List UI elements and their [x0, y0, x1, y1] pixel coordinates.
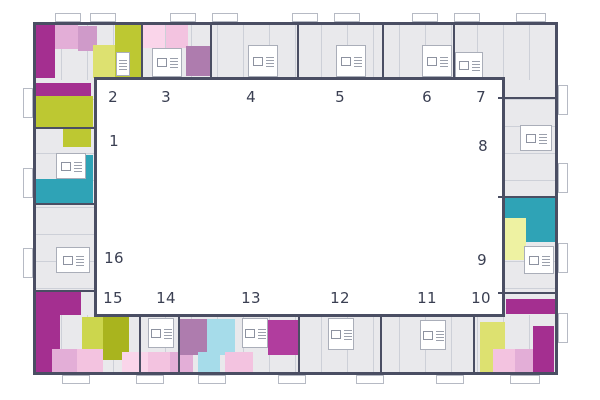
stairs-icon	[344, 329, 352, 340]
section-label-15[interactable]: 15	[103, 289, 123, 307]
section-label-7[interactable]: 7	[476, 88, 486, 106]
wall-divider	[178, 315, 180, 372]
section-label-8[interactable]: 8	[478, 137, 488, 155]
elevator-icon	[61, 162, 71, 171]
balcony-outline	[55, 13, 81, 22]
apartment-block[interactable]	[493, 349, 515, 372]
section-label-6[interactable]: 6	[422, 88, 432, 106]
balcony-outline	[62, 375, 90, 384]
wall-divider	[297, 25, 299, 80]
stairs-icon	[76, 255, 84, 266]
wall-divider	[36, 127, 96, 129]
section-label-14[interactable]: 14	[156, 289, 176, 307]
stair-core	[242, 318, 268, 348]
stair-core	[455, 52, 483, 78]
balcony-outline	[292, 13, 318, 22]
wall-divider	[473, 315, 475, 372]
stair-core	[328, 318, 354, 350]
elevator-icon	[245, 329, 255, 338]
stairs-icon	[170, 57, 178, 68]
apartment-block[interactable]	[166, 25, 188, 48]
stair-core	[248, 45, 278, 77]
section-label-16[interactable]: 16	[104, 249, 124, 267]
apartment-block[interactable]	[170, 352, 193, 372]
wall-divider	[298, 315, 300, 372]
apartment-block[interactable]	[36, 25, 55, 78]
courtyard-area	[94, 77, 505, 317]
apartment-block[interactable]	[533, 326, 554, 372]
apartment-block[interactable]	[148, 352, 170, 372]
apartment-block[interactable]	[36, 83, 91, 96]
elevator-icon	[253, 57, 263, 66]
stair-core	[524, 246, 554, 274]
section-label-10[interactable]: 10	[471, 289, 491, 307]
stair-core	[420, 320, 446, 350]
section-label-9[interactable]: 9	[477, 251, 487, 269]
stairs-icon	[119, 59, 127, 70]
section-label-1[interactable]: 1	[109, 132, 119, 150]
stairs-icon	[539, 133, 547, 144]
wall-divider	[210, 25, 212, 80]
balcony-outline	[516, 13, 546, 22]
apartment-block[interactable]	[52, 349, 77, 372]
stair-core	[422, 45, 452, 77]
elevator-icon	[341, 57, 351, 66]
stair-core	[152, 48, 182, 77]
elevator-icon	[529, 256, 539, 265]
wall-divider	[36, 203, 96, 205]
balcony-outline	[412, 13, 438, 22]
stairs-icon	[440, 56, 448, 67]
apartment-block[interactable]	[504, 218, 526, 260]
wall-divider	[141, 25, 143, 80]
stair-core	[56, 247, 90, 273]
balcony-outline	[510, 375, 540, 384]
elevator-icon	[157, 58, 167, 67]
stair-core	[56, 153, 86, 179]
apartment-block[interactable]	[77, 349, 103, 372]
stair-core	[116, 52, 130, 76]
wall-divider	[139, 315, 141, 372]
elevator-icon	[151, 329, 161, 338]
stairs-icon	[74, 161, 82, 172]
apartment-block[interactable]	[186, 46, 210, 76]
elevator-icon	[459, 61, 469, 70]
elevator-icon	[526, 134, 536, 143]
balcony-outline	[23, 168, 33, 198]
apartment-block[interactable]	[225, 352, 253, 372]
section-label-3[interactable]: 3	[161, 88, 171, 106]
stair-core	[520, 125, 552, 151]
apartment-block[interactable]	[180, 319, 207, 355]
elevator-icon	[63, 256, 73, 265]
elevator-icon	[427, 57, 437, 66]
section-label-13[interactable]: 13	[241, 289, 261, 307]
apartment-block[interactable]	[506, 299, 555, 314]
balcony-outline	[436, 375, 464, 384]
apartment-block[interactable]	[268, 320, 298, 355]
balcony-outline	[278, 375, 306, 384]
wall-divider	[382, 25, 384, 80]
wall-divider	[36, 290, 96, 292]
section-label-11[interactable]: 11	[417, 289, 437, 307]
apartment-block[interactable]	[36, 292, 81, 315]
apartment-block[interactable]	[207, 319, 235, 355]
apartment-block[interactable]	[122, 352, 148, 372]
stairs-icon	[472, 60, 480, 71]
apartment-block[interactable]	[525, 198, 555, 242]
balcony-outline	[136, 375, 164, 384]
balcony-outline	[558, 243, 568, 273]
apartment-block[interactable]	[198, 352, 220, 372]
apartment-block[interactable]	[55, 25, 78, 49]
balcony-outline	[558, 85, 568, 115]
stairs-icon	[542, 255, 550, 266]
stairs-icon	[258, 328, 266, 339]
balcony-outline	[198, 375, 226, 384]
stairs-icon	[354, 56, 362, 67]
section-label-12[interactable]: 12	[330, 289, 350, 307]
section-label-2[interactable]: 2	[108, 88, 118, 106]
balcony-outline	[23, 248, 33, 278]
apartment-block[interactable]	[143, 25, 165, 48]
stair-core	[336, 45, 366, 77]
balcony-outline	[558, 313, 568, 343]
balcony-outline	[212, 13, 238, 22]
apartment-block[interactable]	[63, 127, 91, 147]
floor-plan-canvas: однокомнатные квартиры от 2,6 до 4 млн. …	[0, 0, 600, 400]
balcony-outline	[170, 13, 196, 22]
stair-core	[148, 318, 174, 348]
balcony-outline	[334, 13, 360, 22]
wall-divider	[498, 196, 555, 198]
balcony-outline	[558, 163, 568, 193]
balcony-outline	[90, 13, 116, 22]
wall-divider	[498, 292, 555, 294]
elevator-icon	[423, 331, 433, 340]
wall-divider	[498, 97, 555, 99]
stairs-icon	[266, 56, 274, 67]
elevator-icon	[331, 330, 341, 339]
section-label-5[interactable]: 5	[335, 88, 345, 106]
balcony-outline	[23, 88, 33, 118]
wall-divider	[453, 25, 455, 80]
balcony-outline	[454, 13, 480, 22]
stairs-icon	[436, 330, 444, 341]
stairs-icon	[164, 328, 172, 339]
section-label-4[interactable]: 4	[246, 88, 256, 106]
apartment-block[interactable]	[36, 179, 93, 203]
apartment-block[interactable]	[36, 96, 93, 127]
balcony-outline	[356, 375, 384, 384]
apartment-block[interactable]	[82, 317, 103, 349]
wall-divider	[380, 315, 382, 372]
